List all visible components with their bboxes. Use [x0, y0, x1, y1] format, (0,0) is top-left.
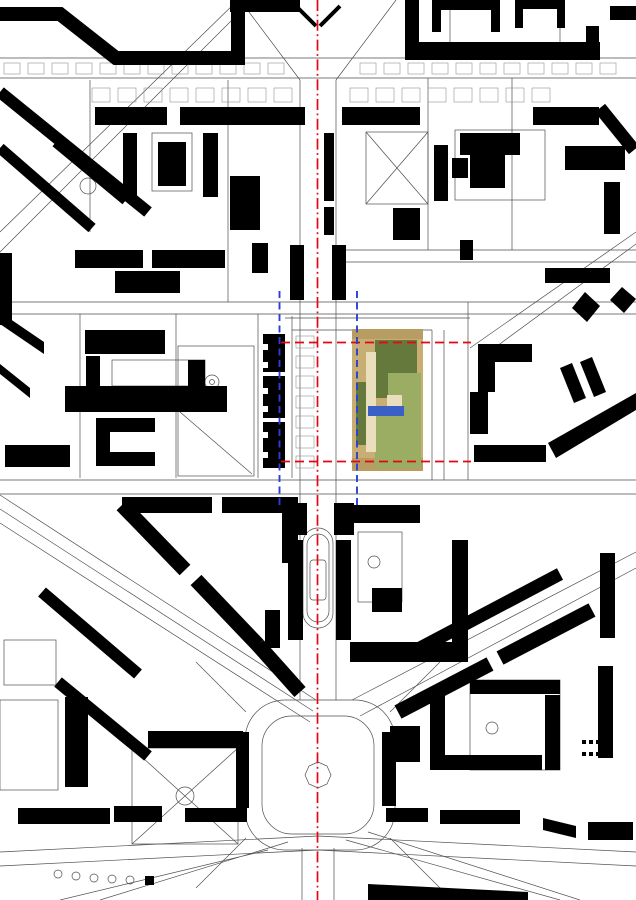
collage-path-cream	[366, 352, 376, 452]
collage-tan-top	[352, 329, 423, 339]
collage-lawn-light-left	[375, 415, 388, 468]
plan-canvas	[0, 0, 636, 900]
aerial-site-collage	[352, 329, 423, 471]
collage-blue-bar	[368, 406, 404, 416]
collage-lawn-light-right	[388, 373, 421, 468]
site-plan-map	[0, 0, 636, 900]
